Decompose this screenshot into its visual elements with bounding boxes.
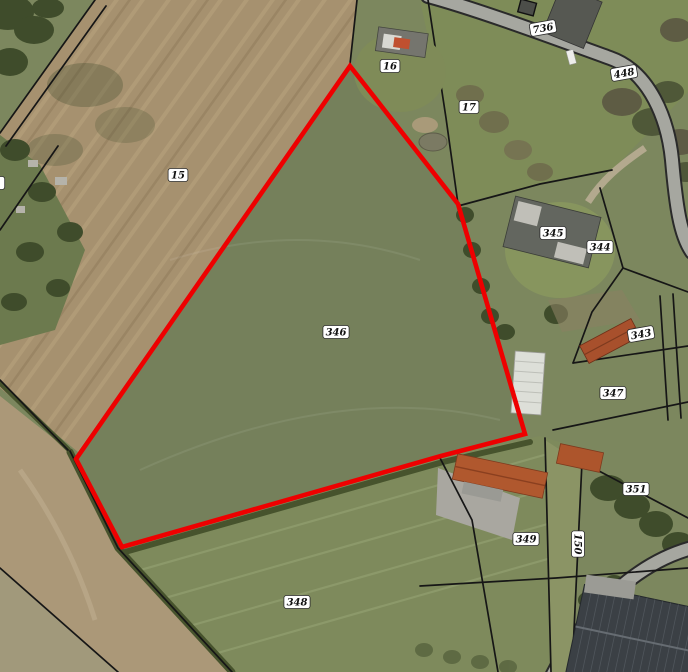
svg-text:348: 348: [287, 598, 308, 609]
parcel-label-346[interactable]: 346: [323, 326, 349, 339]
parcel-label-15[interactable]: 15: [168, 169, 188, 182]
parcel-label-347[interactable]: 347: [600, 387, 626, 400]
parcel-label-349[interactable]: 349: [513, 533, 539, 546]
parcel-label-351[interactable]: 351: [623, 483, 649, 496]
svg-text:16: 16: [383, 62, 397, 73]
svg-text:349: 349: [516, 535, 537, 546]
svg-text:344: 344: [590, 243, 611, 254]
aerial-map[interactable]: 7364481617151345344343346347351349150348: [0, 0, 688, 672]
svg-text:17: 17: [462, 103, 476, 114]
parcel-label-16[interactable]: 16: [380, 60, 400, 73]
svg-text:347: 347: [603, 389, 624, 400]
parcel-label-344[interactable]: 344: [587, 241, 613, 254]
parcel-label-345[interactable]: 345: [540, 227, 566, 240]
parcel-label-17[interactable]: 17: [459, 101, 479, 114]
parcel-label-348[interactable]: 348: [284, 596, 310, 609]
parcel-label-1[interactable]: 1: [0, 177, 5, 190]
svg-text:15: 15: [171, 171, 185, 182]
parcel-label-150[interactable]: 150: [571, 531, 584, 557]
svg-text:1: 1: [0, 179, 1, 190]
svg-text:345: 345: [543, 229, 564, 240]
svg-text:346: 346: [326, 328, 347, 339]
svg-text:150: 150: [571, 534, 582, 555]
svg-text:351: 351: [626, 485, 647, 496]
map-canvas[interactable]: 7364481617151345344343346347351349150348: [0, 0, 688, 672]
